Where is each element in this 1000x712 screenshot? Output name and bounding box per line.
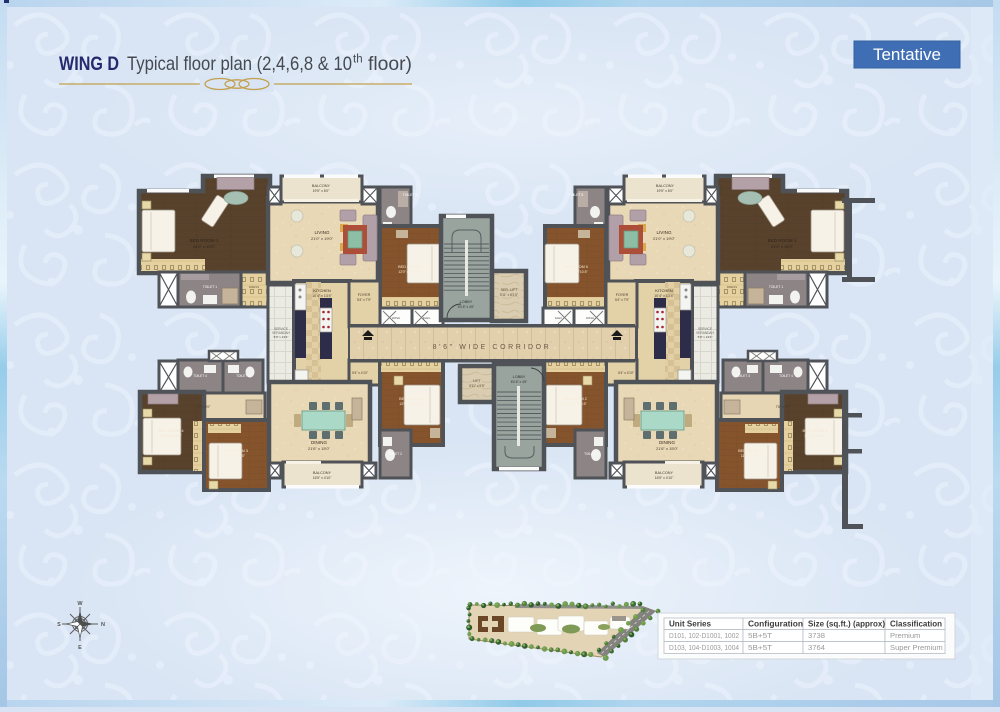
svg-text:TOILET 1: TOILET 1 [769,285,783,289]
svg-text:BED ROOM 3: BED ROOM 3 [224,449,248,453]
svg-text:3738: 3738 [808,631,825,640]
svg-text:TOILET 2: TOILET 2 [584,452,598,456]
svg-text:BED ROOM 5: BED ROOM 5 [564,265,588,269]
svg-text:24'0" x 15'0": 24'0" x 15'0" [193,244,216,249]
svg-text:LIVING: LIVING [656,230,671,235]
svg-text:WASH: WASH [586,316,594,320]
svg-text:LIFT: LIFT [473,379,481,383]
svg-text:TOILET 2: TOILET 2 [388,452,402,456]
svg-text:19'5" x 6'0": 19'5" x 6'0" [313,189,331,193]
svg-text:21'0" x 19'0": 21'0" x 19'0" [311,236,334,241]
svg-text:12'0" x 12'5.5": 12'0" x 12'5.5" [804,434,826,438]
svg-text:6'0.5" x 4'6": 6'0.5" x 4'6" [511,380,528,384]
svg-text:TOILET 4: TOILET 4 [193,374,207,378]
svg-text:3764: 3764 [808,643,825,652]
svg-text:TOILET 5: TOILET 5 [403,193,418,197]
svg-text:16'5" x 4'10": 16'5" x 4'10" [313,476,332,480]
svg-text:5B+5T: 5B+5T [748,643,772,652]
svg-text:DINING: DINING [659,440,676,445]
svg-text:TOILET 1: TOILET 1 [203,285,217,289]
svg-text:LOBBY: LOBBY [513,375,526,379]
svg-text:ELEC.: ELEC. [555,316,563,320]
svg-text:5'4" x 7'9": 5'4" x 7'9" [357,298,371,302]
svg-text:24'0" x 15'0": 24'0" x 15'0" [771,244,794,249]
svg-text:W: W [77,601,83,607]
svg-text:Configuration: Configuration [748,619,803,628]
svg-text:BED ROOM 1: BED ROOM 1 [190,238,219,243]
svg-text:12'0" x 17'10.5": 12'0" x 17'10.5" [398,270,422,274]
svg-text:BED ROOM 1: BED ROOM 1 [768,238,797,243]
svg-text:10'4" x 13'4": 10'4" x 13'4" [654,294,674,298]
svg-text:11'8" x 12'0": 11'8" x 12'0" [227,454,246,458]
svg-text:5'4" x 4'10": 5'4" x 4'10" [352,371,368,375]
svg-text:ELEC.: ELEC. [423,316,431,320]
svg-text:WING D: WING D [59,53,119,75]
svg-text:BED ROOM 2: BED ROOM 2 [399,397,423,401]
svg-text:Typical floor plan (2,4,6,8 &: Typical floor plan (2,4,6,8 & 10 [127,53,352,75]
svg-text:BALCONY: BALCONY [655,471,674,475]
svg-text:12'0" x 17'10.5": 12'0" x 17'10.5" [564,270,588,274]
svg-text:WASH: WASH [392,316,400,320]
svg-text:Size (sq.ft.) (approx): Size (sq.ft.) (approx) [808,619,885,628]
svg-text:KITCHEN: KITCHEN [655,288,673,293]
svg-text:BALCONY: BALCONY [312,184,331,188]
svg-text:th: th [353,54,363,66]
svg-text:5'11" x 5'5": 5'11" x 5'5" [469,384,484,388]
svg-text:8'6" WIDE CORRIDOR: 8'6" WIDE CORRIDOR [433,344,552,351]
svg-text:LOBBY: LOBBY [460,300,473,304]
svg-text:Tentative: Tentative [873,45,941,64]
svg-text:DRESS: DRESS [249,285,259,289]
svg-text:TOILET 5: TOILET 5 [569,193,584,197]
svg-text:TOILET 4: TOILET 4 [779,374,793,378]
svg-text:5'0" x 13'4": 5'0" x 13'4" [274,335,289,339]
svg-text:Super Premium: Super Premium [890,643,943,652]
svg-text:BED ROOM 4: BED ROOM 4 [158,428,184,433]
svg-text:5'4" x 7'9": 5'4" x 7'9" [615,298,629,302]
svg-text:BED ROOM 5: BED ROOM 5 [398,265,422,269]
svg-text:BED ROOM 3: BED ROOM 3 [738,449,762,453]
svg-text:12'0" x 12'5.5": 12'0" x 12'5.5" [160,434,182,438]
svg-text:21'0" x 19'0": 21'0" x 19'0" [653,236,676,241]
svg-text:16'5" x 4'10": 16'5" x 4'10" [655,476,674,480]
svg-text:LIVING: LIVING [314,230,329,235]
svg-text:BED ROOM 2: BED ROOM 2 [563,397,587,401]
svg-text:S: S [57,622,61,628]
svg-text:TOILET 3: TOILET 3 [236,374,250,378]
svg-text:12'0" x 17'10.5": 12'0" x 17'10.5" [399,402,423,406]
svg-text:floor): floor) [368,53,412,75]
svg-text:11'8" x 12'0": 11'8" x 12'0" [741,454,760,458]
svg-text:5'4" x 4'10": 5'4" x 4'10" [618,371,634,375]
svg-text:7'6" x 5'0": 7'6" x 5'0" [196,405,212,409]
svg-text:E: E [78,645,82,651]
svg-text:N: N [101,622,105,628]
svg-text:FOYER: FOYER [616,293,629,297]
svg-text:10'4" x 13'4": 10'4" x 13'4" [312,294,332,298]
svg-text:D101, 102-D1001, 1002: D101, 102-D1001, 1002 [669,631,739,640]
svg-text:BED ROOM 4: BED ROOM 4 [802,428,828,433]
svg-text:21'6" x 15'0": 21'6" x 15'0" [656,446,679,451]
svg-text:DINING: DINING [311,440,328,445]
svg-text:Premium: Premium [890,631,920,640]
svg-text:FOYER: FOYER [358,293,371,297]
svg-text:KITCHEN: KITCHEN [313,288,331,293]
svg-text:BALCONY: BALCONY [313,471,332,475]
svg-text:BALCONY: BALCONY [656,184,675,188]
svg-text:DRESS: DRESS [727,285,737,289]
svg-text:TOILET 3: TOILET 3 [736,374,750,378]
svg-text:19'5" x 6'0": 19'5" x 6'0" [657,189,675,193]
svg-text:D103, 104-D1003, 1004: D103, 104-D1003, 1004 [669,643,739,652]
svg-text:6'0.5" x 4'6": 6'0.5" x 4'6" [458,305,475,309]
svg-text:5'0" x 13'4": 5'0" x 13'4" [698,335,713,339]
svg-text:Unit Series: Unit Series [669,619,712,628]
svg-text:12'0" x 17'10.5": 12'0" x 17'10.5" [563,402,587,406]
svg-text:5'11" x 8'2.5": 5'11" x 8'2.5" [500,293,518,297]
svg-text:21'6" x 15'0": 21'6" x 15'0" [308,446,331,451]
svg-text:SER. LIFT: SER. LIFT [501,288,519,292]
svg-text:5B+5T: 5B+5T [748,631,772,640]
svg-text:7'6" x 5'0": 7'6" x 5'0" [776,405,792,409]
svg-text:Classification: Classification [890,619,942,628]
